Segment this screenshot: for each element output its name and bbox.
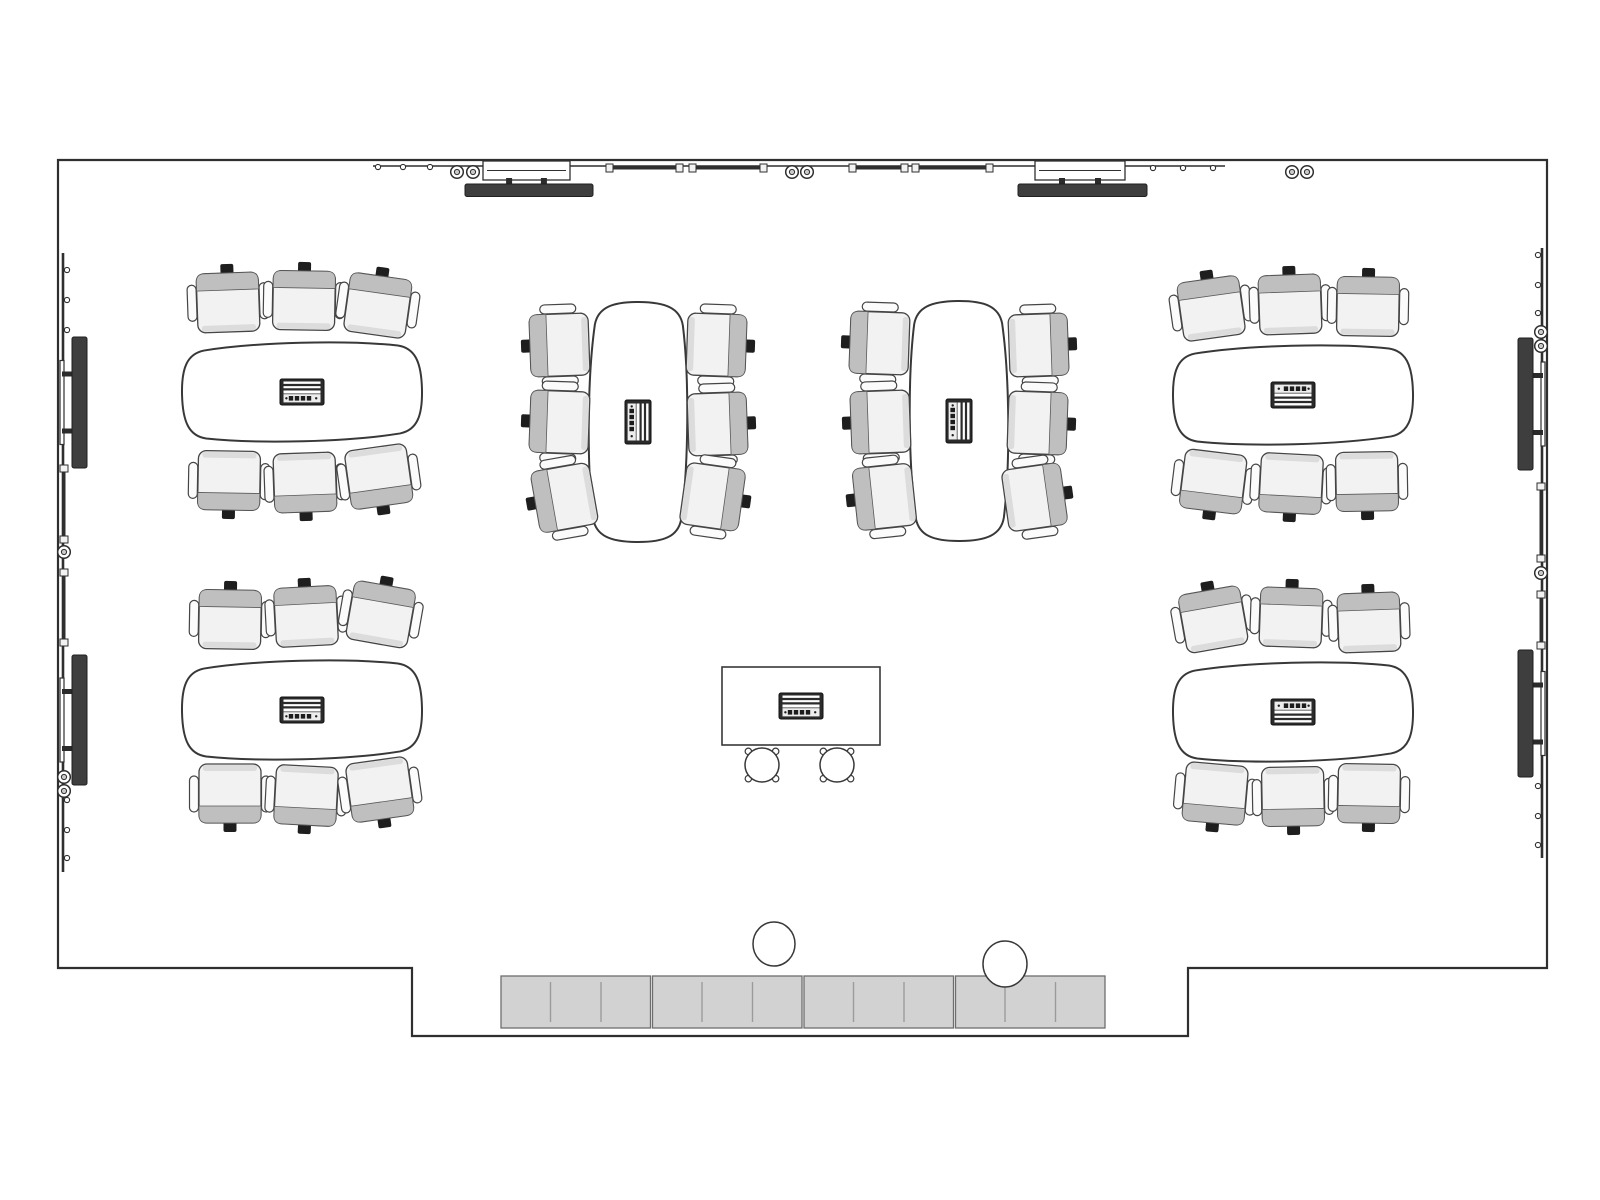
chair-backrest <box>1259 494 1322 514</box>
module-outlet-dot <box>1307 705 1309 707</box>
stool-seat <box>745 748 779 782</box>
module-outlet <box>629 421 634 425</box>
chair-arm <box>1021 382 1057 392</box>
tray-end-cap <box>60 465 68 472</box>
module-outlet <box>950 414 955 418</box>
wall-stud <box>1150 165 1155 170</box>
wall-stud <box>1535 813 1540 818</box>
wall-speaker-icon <box>58 771 71 784</box>
chair-backrest <box>199 806 261 823</box>
chair-arm <box>187 285 197 321</box>
chair-backrest <box>728 314 747 377</box>
display-screen <box>1518 650 1533 777</box>
speaker-inner-dot <box>1538 329 1543 334</box>
module-outlet <box>629 415 634 419</box>
module-outlet <box>629 409 634 413</box>
chair-backrest <box>1049 392 1068 455</box>
display-screen <box>465 184 593 197</box>
chair-backrest <box>1337 276 1399 294</box>
chair-arm <box>1328 775 1338 811</box>
credenza-section <box>501 976 651 1028</box>
tray-end-cap <box>606 164 613 172</box>
wall-stud <box>427 164 432 169</box>
module-outlet-dot <box>952 404 954 406</box>
table-group-center-right <box>840 301 1079 542</box>
wall-stud <box>64 855 69 860</box>
power-module <box>280 697 324 723</box>
module-outlet <box>806 710 810 715</box>
wall-stud <box>64 327 69 332</box>
chair-front-edge <box>276 323 330 330</box>
speaker-inner-dot <box>470 169 475 174</box>
wall-speaker-icon <box>1301 166 1314 179</box>
module-outlet <box>629 427 634 431</box>
waste-bin <box>753 922 795 966</box>
module-outlet <box>295 396 299 401</box>
module-outlet <box>301 396 305 401</box>
power-module <box>779 693 823 719</box>
chair-backrest <box>1262 808 1324 826</box>
tray-end-cap <box>912 164 919 172</box>
tray-end-cap <box>689 164 696 172</box>
module-outlet <box>295 714 299 719</box>
module-lid <box>958 403 970 440</box>
module-outlet-dot <box>952 434 954 436</box>
chair-backrest <box>273 270 335 288</box>
module-outlet <box>794 710 798 715</box>
chair-arm <box>540 304 576 314</box>
chair-arm <box>1399 289 1409 325</box>
chair-arm <box>1327 287 1337 323</box>
chair-front-edge <box>202 452 256 459</box>
module-outlet-dot <box>1307 388 1309 390</box>
display-screen <box>72 655 87 785</box>
tray-end-cap <box>1537 591 1545 598</box>
power-module <box>625 400 651 444</box>
chair-backrest <box>529 390 548 453</box>
module-outlet <box>800 710 804 715</box>
tray-end-cap <box>60 569 68 576</box>
wall-stud <box>400 164 405 169</box>
power-module <box>946 399 972 443</box>
wall-speaker-icon <box>1286 166 1299 179</box>
module-outlet <box>950 426 955 430</box>
chair-backrest <box>198 492 260 510</box>
module-outlet-dot <box>1278 388 1280 390</box>
chair-backrest <box>729 392 748 455</box>
wall-stud <box>375 164 380 169</box>
tray-end-cap <box>60 639 68 646</box>
chair-front-edge <box>1340 329 1394 336</box>
speaker-inner-dot <box>61 774 66 779</box>
module-outlet <box>301 714 305 719</box>
module-outlet <box>1284 386 1288 391</box>
chair-arm <box>1328 605 1338 641</box>
wall-stud <box>64 267 69 272</box>
module-outlet <box>1296 703 1300 708</box>
module-lid <box>1275 394 1312 406</box>
module-outlet-dot <box>1278 705 1280 707</box>
module-outlet-dot <box>315 397 317 399</box>
power-module <box>1271 382 1315 408</box>
chair-backrest <box>529 314 548 377</box>
chair-front-edge <box>1342 765 1396 772</box>
module-outlet <box>950 420 955 424</box>
credenza-section <box>956 976 1106 1028</box>
chair <box>190 764 271 832</box>
table-group-bottom-right <box>1167 575 1415 836</box>
module-outlet-dot <box>631 405 633 407</box>
wall-stud <box>1535 282 1540 287</box>
module-outlet <box>1302 386 1306 391</box>
chair-backrest <box>1336 493 1398 511</box>
wall-stud <box>1535 783 1540 788</box>
speaker-inner-dot <box>1289 169 1294 174</box>
module-outlet <box>1290 386 1294 391</box>
wall-stud <box>1535 310 1540 315</box>
stool <box>820 748 854 782</box>
wall-stud <box>1535 842 1540 847</box>
chair-backrest <box>196 272 259 291</box>
chair-arm <box>1252 780 1262 816</box>
chair-front-edge <box>1339 453 1393 460</box>
chair-arm <box>1326 465 1336 501</box>
wall-speaker-icon <box>1535 326 1548 339</box>
wall-stud <box>1535 252 1540 257</box>
tray-end-cap <box>849 164 856 172</box>
wall-speaker-icon <box>786 166 799 179</box>
wall-speaker-icon <box>801 166 814 179</box>
wall-speaker-icon <box>451 166 464 179</box>
module-outlet-dot <box>285 715 287 717</box>
table-group-center-left <box>520 302 758 545</box>
speaker-inner-dot <box>61 549 66 554</box>
module-outlet <box>1290 703 1294 708</box>
wall-stud <box>1180 165 1185 170</box>
display-screen <box>1018 184 1147 197</box>
module-lid <box>637 404 649 441</box>
wall-stud <box>64 797 69 802</box>
credenza-section <box>804 976 954 1028</box>
floor-plan <box>0 0 1600 1200</box>
tray-end-cap <box>986 164 993 172</box>
chair-arm <box>1400 603 1410 639</box>
module-outlet <box>307 396 311 401</box>
tray-end-cap <box>760 164 767 172</box>
chair-backrest <box>274 494 337 513</box>
speaker-inner-dot <box>1304 169 1309 174</box>
module-outlet-dot <box>631 435 633 437</box>
chair-backrest <box>1338 805 1400 823</box>
tray-end-cap <box>60 536 68 543</box>
chair-front-edge <box>202 642 256 649</box>
chair-arm <box>700 304 736 314</box>
chair-arm <box>862 302 898 312</box>
module-lid <box>783 696 820 708</box>
tray-end-cap <box>1537 642 1545 649</box>
wall-speaker-icon <box>1535 340 1548 353</box>
chair-arm <box>189 600 199 636</box>
module-outlet <box>788 710 792 715</box>
tray-end-cap <box>901 164 908 172</box>
chair-front-edge <box>1265 768 1319 775</box>
module-outlet <box>1302 703 1306 708</box>
wall-speaker-icon <box>1535 567 1548 580</box>
table-group-top-left <box>181 261 425 522</box>
chair-arm <box>263 281 273 317</box>
chair-arm <box>1020 304 1056 314</box>
tray-end-cap <box>676 164 683 172</box>
speaker-inner-dot <box>1538 570 1543 575</box>
display-screen <box>72 337 87 468</box>
power-module <box>1271 699 1315 725</box>
chair-backrest <box>850 391 869 454</box>
chair-backrest <box>1258 274 1321 293</box>
power-module <box>280 379 324 405</box>
module-outlet-dot <box>315 715 317 717</box>
chair-backrest <box>849 311 868 374</box>
chair-arm <box>1250 598 1260 634</box>
module-outlet-dot <box>784 711 786 713</box>
wall-stud <box>64 297 69 302</box>
chair-arm <box>190 776 199 812</box>
chair-arm <box>188 462 198 498</box>
chair-arm <box>1249 287 1259 323</box>
tray-end-cap <box>1537 555 1545 562</box>
module-outlet-dot <box>814 711 816 713</box>
chair-arm <box>1398 463 1408 499</box>
chair-backrest <box>274 585 337 605</box>
table-group-bottom-left <box>181 570 428 837</box>
chair-arm <box>861 381 897 391</box>
speaker-inner-dot <box>1538 343 1543 348</box>
tray-end-cap <box>1537 483 1545 490</box>
wall-speaker-icon <box>58 785 71 798</box>
module-lid <box>284 700 321 712</box>
module-outlet <box>307 714 311 719</box>
speaker-inner-dot <box>454 169 459 174</box>
module-lid <box>284 382 321 394</box>
speaker-inner-dot <box>789 169 794 174</box>
display-screen <box>1518 338 1533 470</box>
credenza-section <box>653 976 803 1028</box>
stool <box>745 748 779 782</box>
speaker-inner-dot <box>61 788 66 793</box>
module-outlet <box>950 408 955 412</box>
module-outlet <box>289 714 293 719</box>
waste-bin <box>983 941 1027 987</box>
chair-arm <box>542 381 578 391</box>
floor-plan-canvas <box>0 0 1600 1200</box>
speaker-inner-dot <box>804 169 809 174</box>
chair-backrest <box>1050 313 1069 376</box>
stool-seat <box>820 748 854 782</box>
chair-arm <box>264 466 274 502</box>
module-lid <box>1275 711 1312 723</box>
module-outlet <box>289 396 293 401</box>
module-outlet-dot <box>285 397 287 399</box>
wall-speaker-icon <box>467 166 480 179</box>
chair-backrest <box>274 806 337 826</box>
wall-speaker-icon <box>58 546 71 559</box>
wall-stud <box>1210 165 1215 170</box>
table-group-top-right <box>1166 265 1415 525</box>
chair-backrest <box>1260 587 1323 606</box>
chair-backrest <box>199 589 261 607</box>
chair-arm <box>699 383 735 393</box>
chair-backrest <box>1337 592 1400 611</box>
module-outlet <box>1284 703 1288 708</box>
chair-front-edge <box>203 765 257 771</box>
wall-stud <box>64 827 69 832</box>
module-outlet <box>1296 386 1300 391</box>
chair-arm <box>1400 777 1410 813</box>
